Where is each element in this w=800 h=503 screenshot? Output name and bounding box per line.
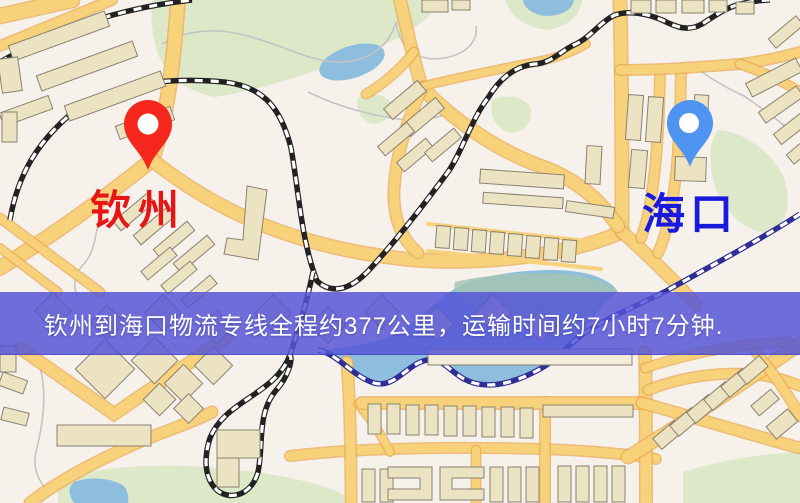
qinzhou-pin-icon[interactable]	[124, 100, 172, 170]
haikou-city-label: 海口	[642, 180, 738, 242]
route-info-banner: 钦州到海口物流专线全程约377公里，运输时间约7小时7分钟.	[0, 292, 800, 355]
route-info-text: 钦州到海口物流专线全程约377公里，运输时间约7小时7分钟.	[44, 306, 723, 341]
map-screenshot: 钦州 海口 钦州到海口物流专线全程约377公里，运输时间约7小时7分钟.	[0, 0, 800, 503]
map-canvas[interactable]	[0, 0, 800, 503]
qinzhou-city-label: 钦州	[90, 176, 186, 236]
